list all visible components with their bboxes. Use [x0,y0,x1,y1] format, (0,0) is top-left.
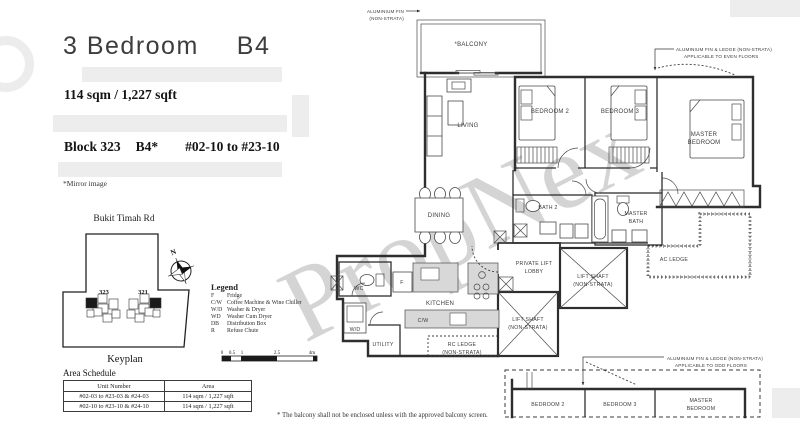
legend: Legend FFridge C/WCoffee Machine & Wine … [211,282,329,334]
legend-label: Washer & Dryer [227,307,265,314]
scale-tick: 2.5 [274,351,281,356]
lift-shaft-left-label2: (NON-STRATA) [508,325,547,331]
scale-bar: 0 0.5 1 2.5 4m [221,351,317,361]
balcony-fin-inner [421,24,541,73]
legend-item: W/DWasher & Dryer [211,307,329,314]
floorplan-page: PropNex 3 BedroomB4 114 sqm / 1,227 sqft… [0,0,800,436]
legend-item: C/WCoffee Machine & Wine Chiller [211,300,329,307]
fin-section-strip: BEDROOM 2 BEDROOM 3 MASTER BEDROOM [505,370,760,417]
ac-ledge-label: AC LEDGE [660,257,689,263]
annotation-fin-even: ALUMINIUM FIN & LEDGE (NON-STRATA) APPLI… [655,47,772,75]
keyplan-block-323 [86,294,120,322]
table-header-row: Unit Number Area [64,381,252,392]
strip-master-label: MASTER [689,398,712,404]
dining-label: DINING [428,213,451,219]
living-label: LIVING [457,123,478,129]
legend-item: RRefuse Chute [211,328,329,335]
strip-bedroom3-label: BEDROOM 3 [603,402,636,408]
ac-ledge-outline [648,214,750,277]
block-type: B4* [136,139,159,155]
legend-item: WDWasher Cum Dryer [211,314,329,321]
fin-odd-line2: APPLICABLE TO ODD FLOORS [675,363,747,368]
balcony-label: *BALCONY [454,42,487,48]
area-schedule-heading: Area Schedule [63,368,252,378]
unit-type-code: B4 [237,32,271,61]
keyplan-block-321 [127,294,161,322]
fin-odd-line1: ALUMINIUM FIN & LEDGE (NON-STRATA) [667,356,763,361]
legend-abbr: WD [211,314,227,321]
highlighted-unit [150,298,161,308]
table-row: #02-03 to #23-03 & #24-03 114 sqm / 1,22… [64,392,252,402]
title-text: 3 Bedroom [63,32,199,61]
bedroom2-label: BEDROOM 2 [531,109,570,115]
vanity [540,222,556,234]
legend-label: Washer Cum Dryer [227,314,272,321]
legend-label: Fridge [227,293,242,300]
legend-abbr: F [211,293,227,300]
block-label: Block 323 [64,139,121,155]
lift-shaft-right-label2: (NON-STRATA) [573,282,612,288]
keyplan-caption: Keyplan [107,354,143,365]
block-number-right: 321 [138,289,148,296]
rc-ledge-label2: (NON-STRATA) [442,350,481,356]
lift-shaft-right-label: LIFT SHAFT [577,274,609,280]
legend-item: FFridge [211,293,329,300]
bed [690,100,744,158]
master-bedroom-label: MASTER [691,132,718,138]
compass-n-label: N [169,247,178,258]
area-schedule: Area Schedule Unit Number Area #02-03 to… [63,368,252,412]
legend-label: Distribution Box [227,321,266,328]
cell-unit-number: #02-03 to #23-03 & #24-03 [64,392,165,402]
fin-top-line2: (NON-STRATA) [369,16,404,21]
vanity [632,230,647,242]
unit-range: #02-10 to #23-10 [185,139,280,155]
cell-area: 114 sqm / 1,227 sqft [165,402,252,412]
coffee-wine-label: C/W [418,318,429,324]
unit-walls [337,20,760,356]
cell-area: 114 sqm / 1,227 sqft [165,392,252,402]
scale-tick: 0.5 [229,351,236,356]
compass-icon: N [159,243,200,290]
page-title: 3 BedroomB4 [63,32,270,61]
tv-console [447,79,471,92]
kitchen-label: KITCHEN [426,301,454,307]
mirror-image-note: *Mirror image [63,179,107,188]
col-unit-number: Unit Number [64,381,165,392]
area-schedule-table: Unit Number Area #02-03 to #23-03 & #24-… [63,380,252,412]
keyplan: Bukit Timah Rd 323 321 Keyplan [63,214,199,365]
wc-label: WC [354,286,363,292]
bedroom3-furniture [609,86,649,163]
block-line: Block 323 B4* #02-10 to #23-10 [64,139,280,155]
legend-abbr: W/D [211,307,227,314]
living-furniture [427,79,471,156]
legend-abbr: R [211,328,227,335]
block-number-left: 323 [99,289,110,296]
master-bath-label: MASTER [624,211,647,217]
balcony-fin-outer [417,20,545,77]
lobby-label2: LOBBY [525,269,544,275]
strip-bedroom2-label: BEDROOM 2 [531,402,564,408]
fin-even-line2: APPLICABLE TO EVEN FLOORS [684,54,759,59]
lift-shaft-left [498,292,558,356]
lift-shaft-left-label: LIFT SHAFT [512,317,544,323]
sink [421,268,439,280]
annotation-fin-top: ALUMINIUM FIN (NON-STRATA) [367,9,420,21]
sofa [427,96,442,156]
legend-heading: Legend [211,282,329,292]
lobby-label: PRIVATE LIFT [516,261,553,267]
table-row: #02-10 to #23-10 & #24-10 114 sqm / 1,22… [64,402,252,412]
bedroom2-furniture [517,86,557,163]
bedroom3-label: BEDROOM 3 [601,109,640,115]
bath2-label: BATH 2 [538,205,557,211]
scale-tick: 0 [221,351,224,356]
keyplan-road-label: Bukit Timah Rd [93,214,154,224]
legend-item: DBDistribution Box [211,321,329,328]
washer-dryer-label: W/D [350,327,361,333]
door-arcs [352,148,678,325]
master-bath-label2: BATH [629,219,643,225]
coffee-table [448,101,463,125]
legend-label: Refuse Chute [227,328,258,335]
unit-area-text: 114 sqm / 1,227 sqft [64,87,177,103]
highlighted-unit [86,298,97,308]
utility-label: UTILITY [372,342,393,348]
cell-unit-number: #02-10 to #23-10 & #24-10 [64,402,165,412]
master-bedroom-label2: BEDROOM [688,140,721,146]
fin-top-line1: ALUMINIUM FIN [367,9,404,14]
scale-tick: 4m [309,351,316,356]
master-bedroom-furniture [660,100,744,207]
rc-ledge-label: RC LEDGE [448,342,477,348]
lobby-walls [498,243,560,292]
legend-label: Coffee Machine & Wine Chiller [227,300,302,307]
legend-abbr: DB [211,321,227,328]
strip-master-label2: BEDROOM [687,406,716,412]
fin-even-line1: ALUMINIUM FIN & LEDGE (NON-STRATA) [676,47,772,52]
balcony-footnote: * The balcony shall not be enclosed unle… [277,412,488,419]
col-area: Area [165,381,252,392]
legend-abbr: C/W [211,300,227,307]
wc-toilet [360,275,374,286]
fridge-label: F [400,280,403,286]
scale-tick: 1 [241,351,244,356]
